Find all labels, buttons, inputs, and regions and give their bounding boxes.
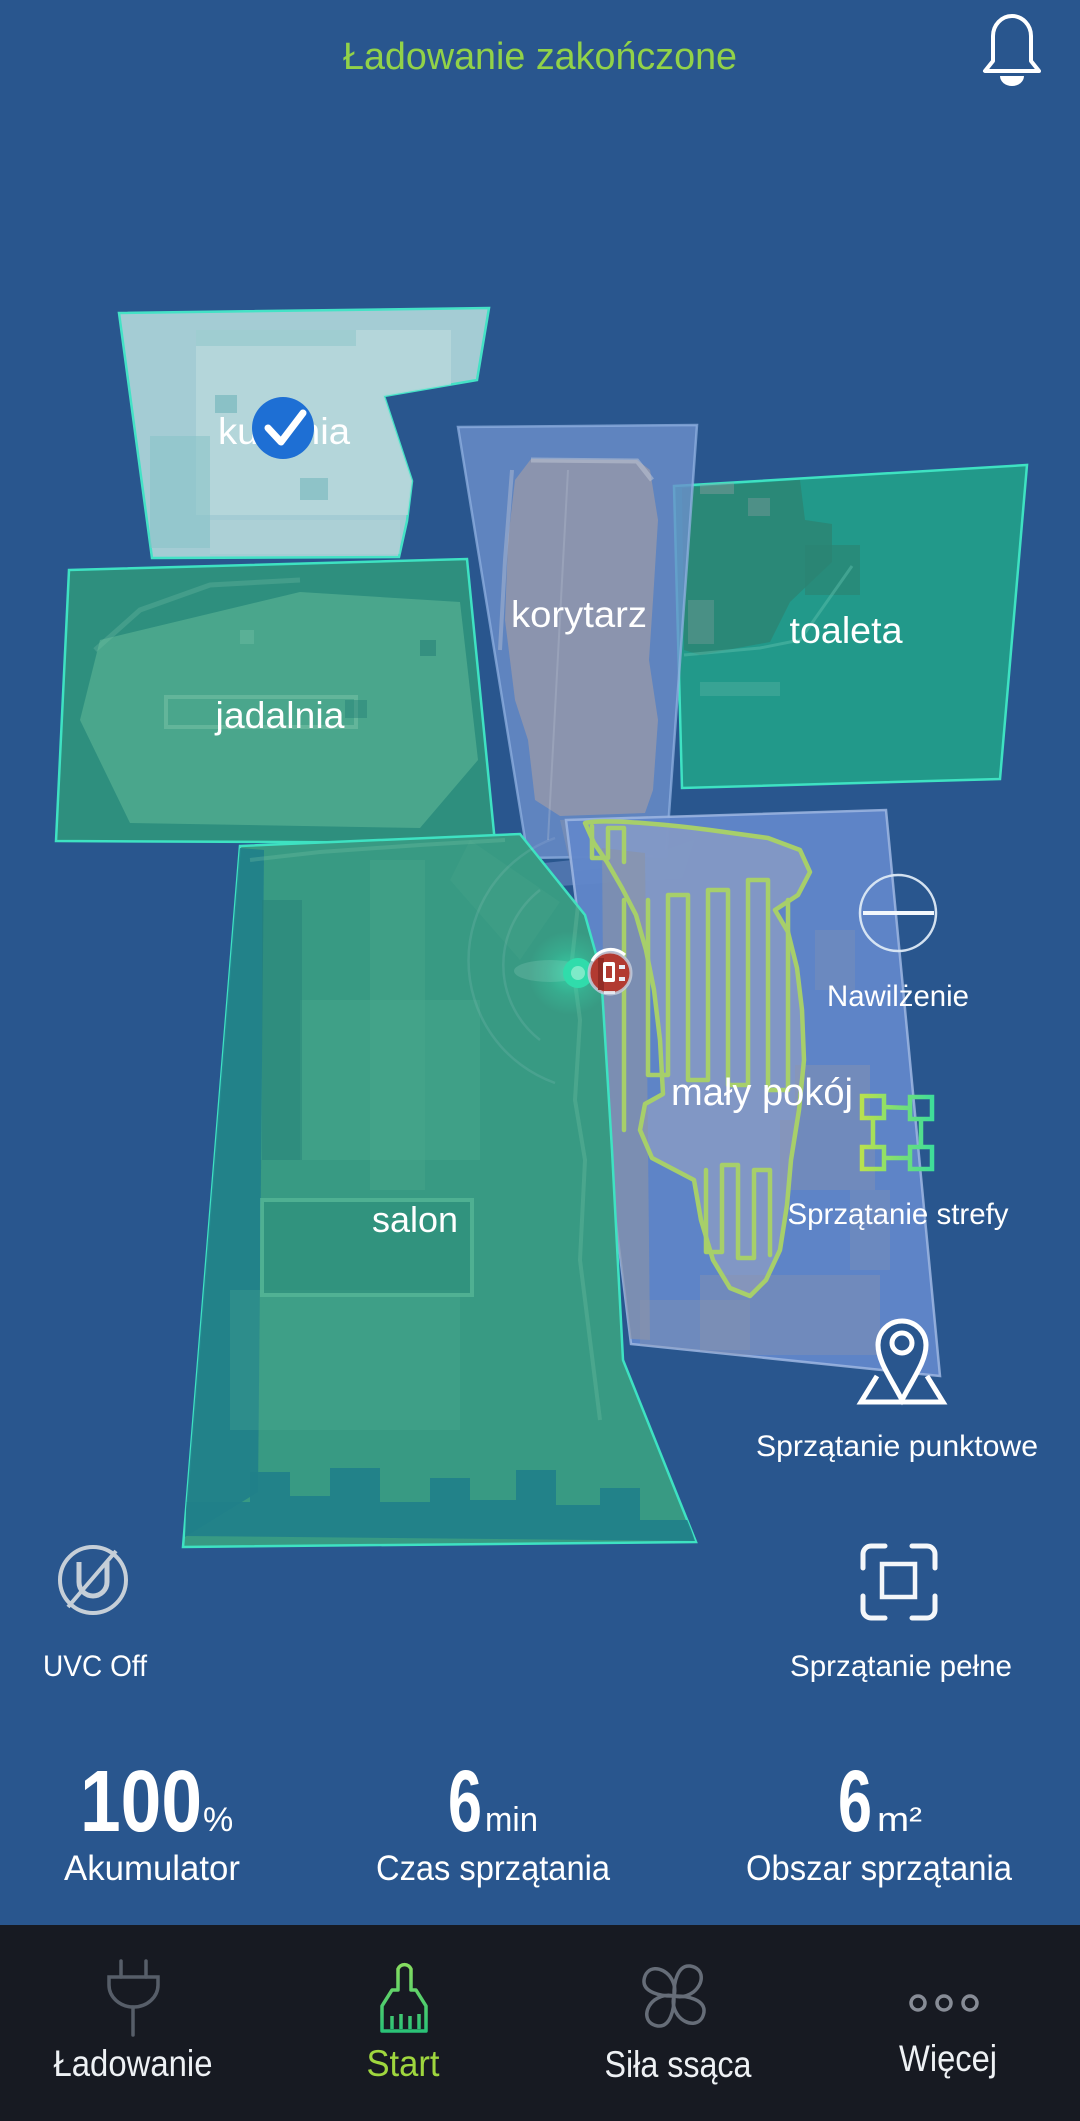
svg-text:%: % — [203, 1801, 233, 1839]
svg-text:Sprzątanie strefy: Sprzątanie strefy — [788, 1198, 1009, 1231]
svg-text:jadalnia: jadalnia — [214, 695, 344, 736]
svg-text:Czas sprzątania: Czas sprzątania — [376, 1849, 610, 1888]
svg-text:korytarz: korytarz — [511, 594, 647, 635]
svg-text:min: min — [485, 1801, 538, 1839]
svg-text:6: 6 — [448, 1753, 482, 1850]
svg-text:mały pokój: mały pokój — [671, 1072, 853, 1114]
svg-text:Więcej: Więcej — [899, 2038, 997, 2079]
svg-text:UVC Off: UVC Off — [43, 1650, 148, 1683]
svg-text:Siła ssąca: Siła ssąca — [605, 2044, 752, 2085]
svg-text:Sprzątanie pełne: Sprzątanie pełne — [790, 1650, 1012, 1683]
svg-text:Ładowanie zakończone: Ładowanie zakończone — [343, 36, 737, 78]
svg-text:Akumulator: Akumulator — [64, 1849, 240, 1888]
svg-text:m²: m² — [877, 1801, 922, 1839]
svg-text:Start: Start — [367, 2043, 441, 2084]
svg-text:salon: salon — [372, 1199, 458, 1240]
svg-text:Ładowanie: Ładowanie — [54, 2043, 213, 2084]
svg-text:Sprzątanie punktowe: Sprzątanie punktowe — [756, 1430, 1038, 1463]
svg-text:Obszar sprzątania: Obszar sprzątania — [746, 1849, 1012, 1888]
svg-text:toaleta: toaleta — [790, 610, 903, 651]
svg-text:6: 6 — [838, 1753, 872, 1850]
svg-text:Nawilżenie: Nawilżenie — [827, 980, 969, 1013]
svg-text:100: 100 — [80, 1753, 202, 1850]
